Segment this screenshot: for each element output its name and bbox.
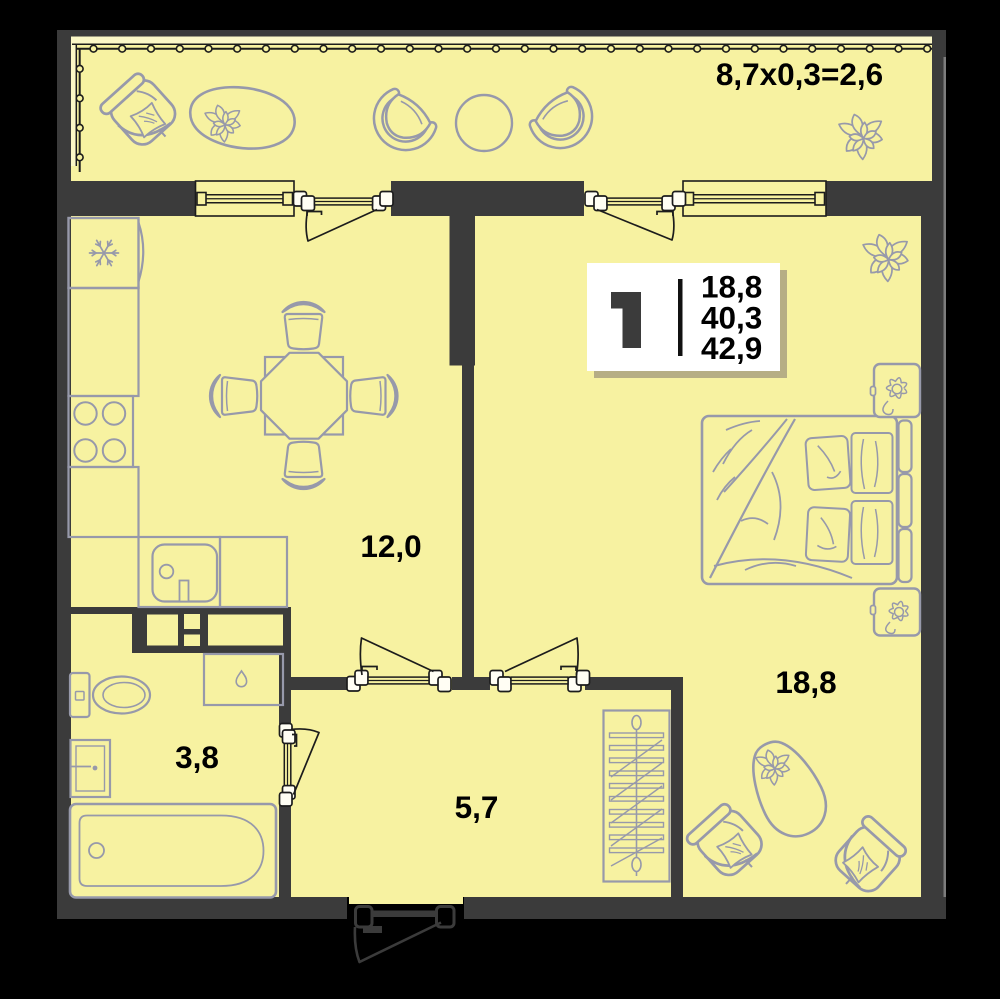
svg-text:18,8: 18,8 xyxy=(775,664,836,700)
svg-text:8,7x0,3=2,6: 8,7x0,3=2,6 xyxy=(716,56,883,92)
svg-text:5,7: 5,7 xyxy=(455,789,499,825)
svg-text:42,9: 42,9 xyxy=(701,330,762,366)
svg-text:12,0: 12,0 xyxy=(360,528,421,564)
svg-text:3,8: 3,8 xyxy=(175,739,219,775)
